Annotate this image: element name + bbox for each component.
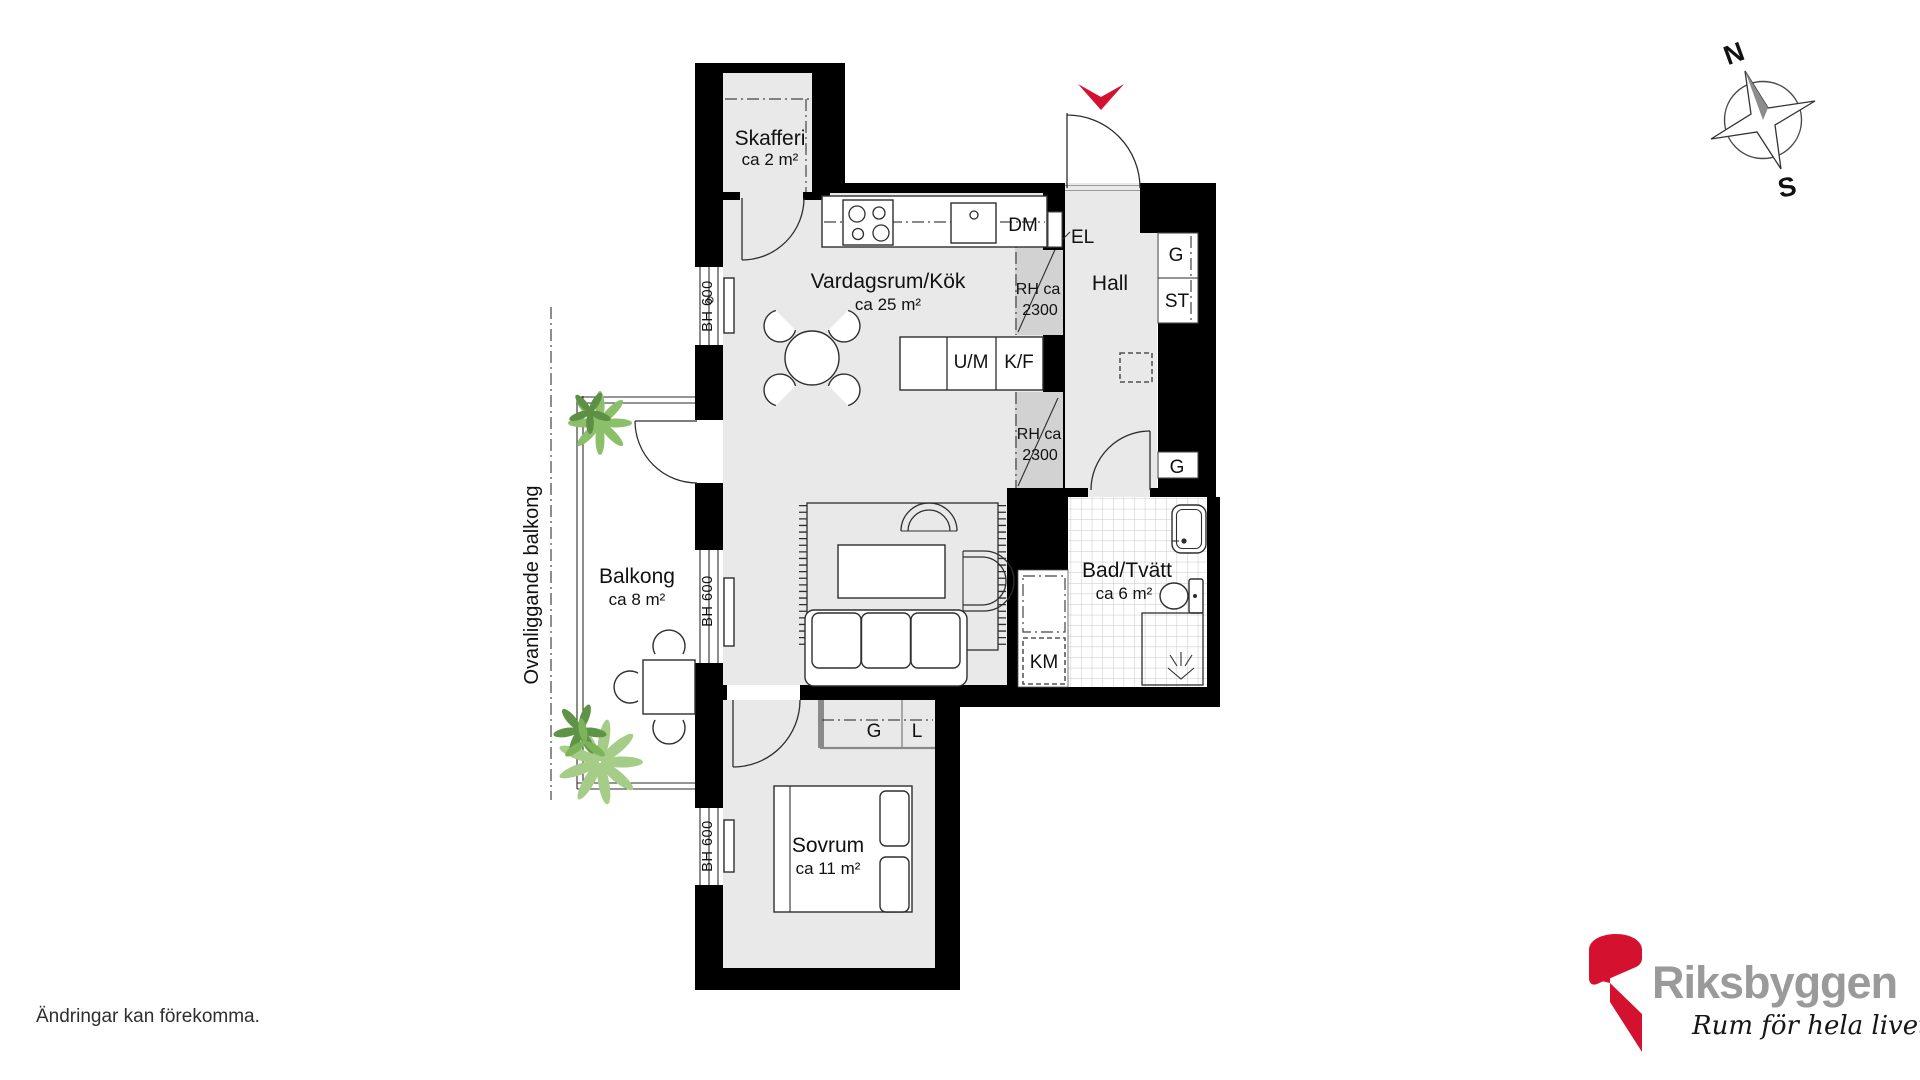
balcony-table (643, 660, 695, 714)
riksbyggen-mark-icon (1589, 934, 1642, 1052)
brand-name: Riksbyggen (1652, 957, 1897, 1008)
apartment: Skafferi ca 2 m² Vardagsrum/Kök ca 25 m²… (521, 63, 1220, 990)
label-sovrum-area: ca 11 m² (796, 859, 861, 878)
label-bh600-bedroom: BH 600 (700, 820, 716, 871)
pillow (880, 857, 909, 912)
label-rh2-line1: RH ca (1017, 426, 1062, 443)
pillow (880, 791, 909, 846)
disclaimer: Ändringar kan förekomma. (36, 1006, 260, 1027)
plant-top (568, 391, 632, 455)
label-skafferi-area: ca 2 m² (742, 150, 799, 169)
entrance-arrow-icon (1078, 84, 1124, 110)
label-vardagsrum-area: ca 25 m² (855, 295, 921, 314)
stove (843, 200, 893, 245)
radiator (724, 578, 734, 646)
balcony-chair (653, 720, 685, 744)
label-rh2-line2: 2300 (1022, 447, 1058, 464)
radiator (724, 278, 734, 333)
radiator (724, 820, 734, 872)
label-rh1-line2: 2300 (1022, 302, 1058, 319)
label-g-hall: G (1169, 245, 1184, 266)
label-km: KM (1030, 652, 1059, 673)
balcony-chair (653, 630, 685, 654)
label-hall: Hall (1092, 272, 1128, 295)
coffee-table (838, 545, 945, 598)
compass-south-label: S (1775, 171, 1799, 204)
label-bh600-mid: BH 600 (700, 575, 716, 626)
floorplan-page: Skafferi ca 2 m² Vardagsrum/Kök ca 25 m²… (0, 0, 1920, 1080)
door-balcony (635, 421, 697, 483)
label-skafferi: Skafferi (735, 127, 806, 150)
label-g-lower: G (1170, 457, 1185, 478)
label-vardagsrum: Vardagsrum/Kök (811, 270, 966, 293)
label-el: EL (1071, 227, 1094, 248)
compass-rose: N S (1711, 36, 1815, 204)
label-balkong-area: ca 8 m² (609, 590, 666, 609)
balcony (551, 307, 695, 805)
floorplan-canvas: Skafferi ca 2 m² Vardagsrum/Kök ca 25 m²… (0, 0, 1920, 1080)
label-bad-area: ca 6 m² (1096, 584, 1153, 603)
balcony-door-opening (695, 420, 723, 483)
label-bh600-upper: BH 600 (700, 280, 716, 331)
label-ovanliggande-balkong: Ovanliggande balkong (521, 485, 543, 684)
compass-north-label: N (1720, 36, 1749, 71)
label-sovrum: Sovrum (792, 834, 864, 857)
el-cabinet (1048, 212, 1062, 247)
door-entrance (1065, 113, 1140, 191)
label-l-bedroom: L (912, 721, 923, 742)
bath-sink (1172, 505, 1206, 553)
label-um: U/M (954, 352, 989, 373)
label-dm: DM (1008, 215, 1038, 236)
label-rh1-line1: RH ca (1016, 281, 1061, 298)
riksbyggen-logo: Riksbyggen Rum för hela livet (1589, 934, 1920, 1052)
sofa (805, 610, 967, 686)
label-g-bedroom: G (867, 721, 882, 742)
label-balkong: Balkong (599, 565, 675, 588)
plant-bottom (553, 703, 643, 805)
balcony-chair (614, 671, 638, 703)
label-st: ST (1165, 291, 1190, 312)
brand-tagline: Rum för hela livet (1691, 1011, 1920, 1041)
kitchen-sink (951, 203, 996, 243)
entry-threshold (1065, 183, 1140, 193)
label-kf: K/F (1004, 352, 1034, 373)
bath-threshold (1088, 488, 1150, 497)
label-bad: Bad/Tvätt (1082, 559, 1172, 582)
